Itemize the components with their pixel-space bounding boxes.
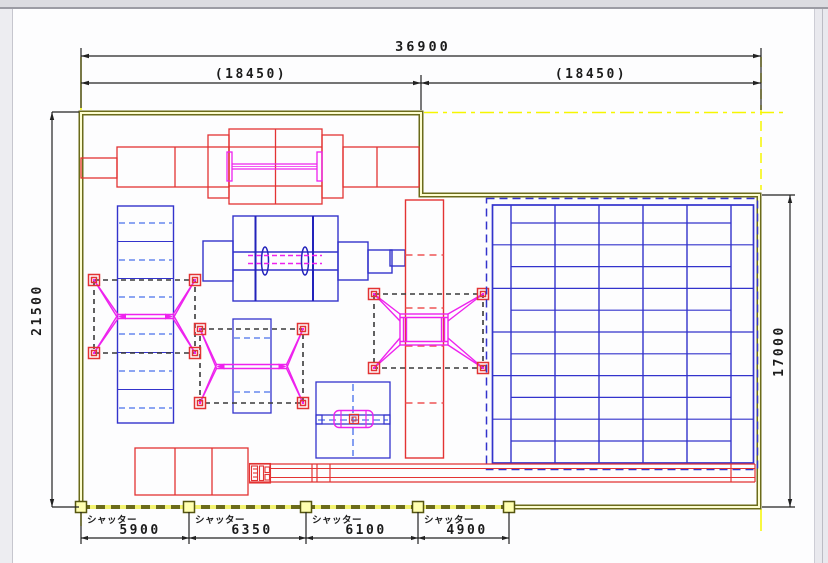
cad-floor-plan-screenshot: 36900 (18450) (18450) 21500 17000 シャッター … bbox=[0, 0, 828, 563]
storage-rack-grid bbox=[487, 199, 758, 470]
workpiece-ibeam bbox=[227, 152, 322, 181]
floor-plan-svg: 36900 (18450) (18450) 21500 17000 シャッター … bbox=[0, 0, 828, 563]
hoist-zone-1 bbox=[94, 280, 195, 353]
dim-shutter-4: 4900 bbox=[446, 523, 487, 538]
hoist-zone-3 bbox=[374, 294, 483, 368]
conveyor-line bbox=[249, 464, 755, 482]
dim-shutter-1: 5900 bbox=[119, 523, 160, 538]
dim-shutter-3: 6100 bbox=[345, 523, 386, 538]
dim-shutter-2: 6350 bbox=[231, 523, 272, 538]
dim-right-half: (18450) bbox=[555, 67, 627, 82]
dim-height-left: 21500 bbox=[30, 284, 45, 336]
dim-overall-width: 36900 bbox=[395, 39, 451, 55]
rack-right-red bbox=[406, 200, 444, 458]
machine-block-bottom-left bbox=[135, 448, 248, 495]
hoist-zone-2 bbox=[200, 319, 303, 413]
tow-tractor bbox=[250, 464, 271, 484]
dim-left-half: (18450) bbox=[215, 67, 287, 82]
dim-height-right: 17000 bbox=[772, 325, 787, 377]
machine-turntable bbox=[316, 382, 390, 458]
